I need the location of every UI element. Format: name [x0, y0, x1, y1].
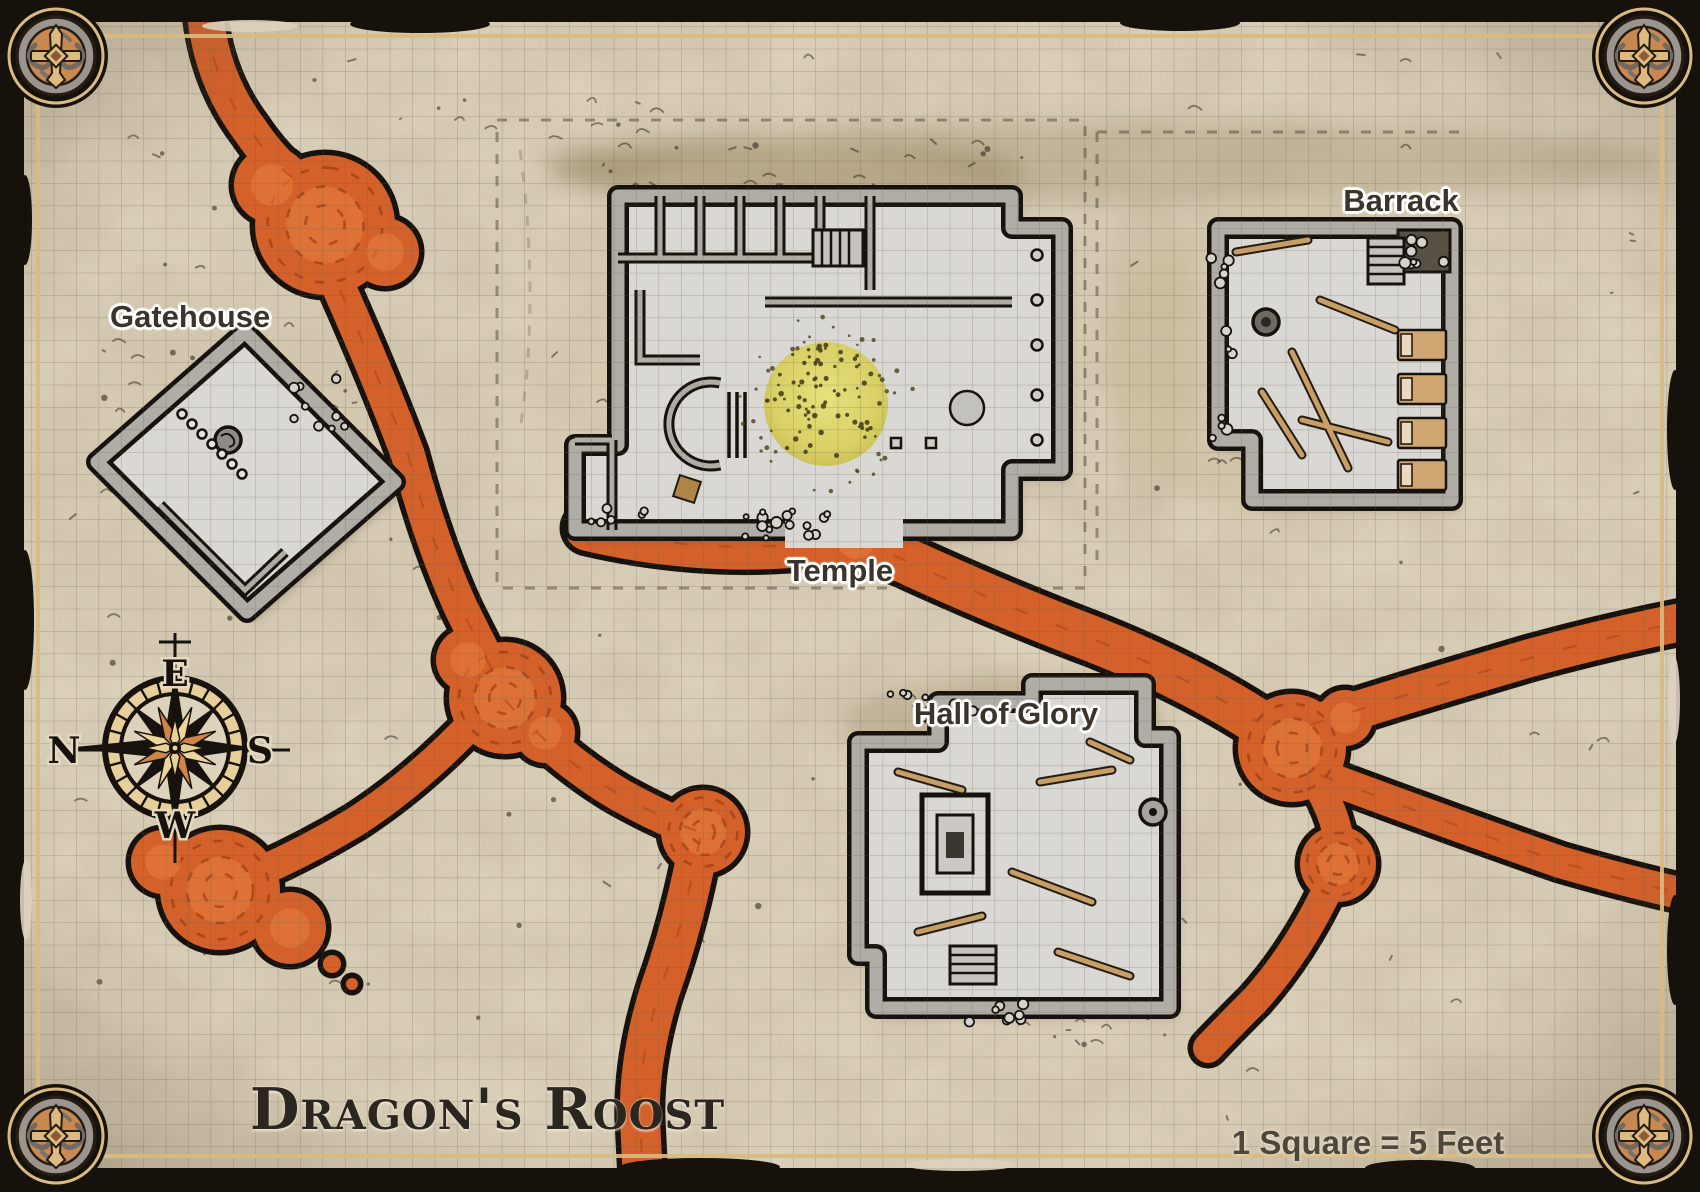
- compass-east-label: E: [161, 653, 188, 695]
- compass-west-label: W: [154, 805, 196, 847]
- compass-south-label: S: [247, 730, 273, 772]
- dragons-roost-battle-map: E N S W Gatehouse Temple Barrack Hall of…: [0, 0, 1700, 1192]
- compass-north-label: N: [48, 730, 81, 772]
